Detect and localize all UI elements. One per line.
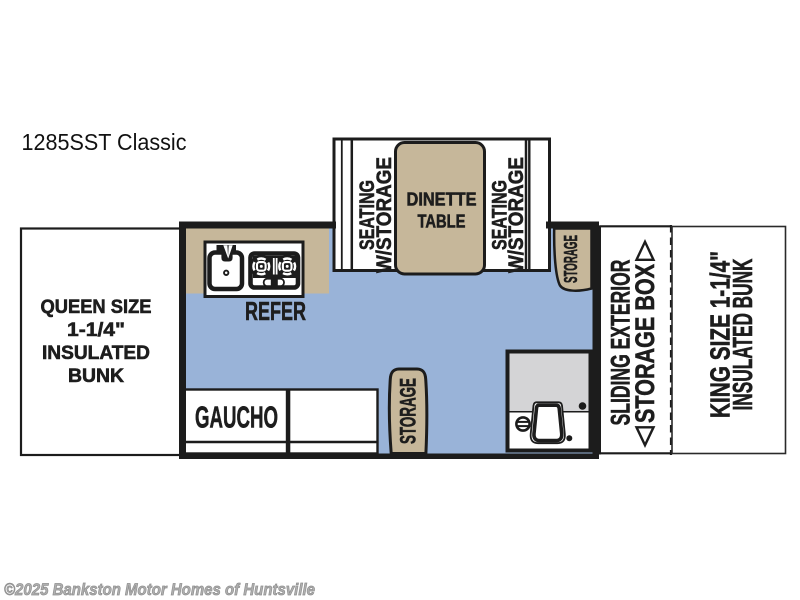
svg-text:W/STORAGE: W/STORAGE [372,157,396,273]
svg-text:INSULATED BUNK: INSULATED BUNK [727,258,758,410]
svg-text:DINETTE: DINETTE [407,189,477,210]
svg-text:TABLE: TABLE [418,211,466,232]
svg-text:©2025 Bankston Motor Homes of: ©2025 Bankston Motor Homes of Huntsville [4,580,315,599]
svg-text:STORAGE: STORAGE [560,235,581,283]
svg-text:STORAGE BOX: STORAGE BOX [630,264,660,423]
svg-text:GAUCHO: GAUCHO [195,401,278,435]
svg-text:INSULATED: INSULATED [42,342,150,364]
svg-text:1285SST Classic: 1285SST Classic [22,129,187,155]
svg-text:BUNK: BUNK [68,365,124,387]
svg-text:STORAGE: STORAGE [396,378,421,444]
svg-text:1-1/4": 1-1/4" [67,319,125,341]
svg-text:W/STORAGE: W/STORAGE [504,157,528,273]
svg-text:QUEEN SIZE: QUEEN SIZE [41,296,152,318]
svg-text:REFER: REFER [245,296,306,326]
